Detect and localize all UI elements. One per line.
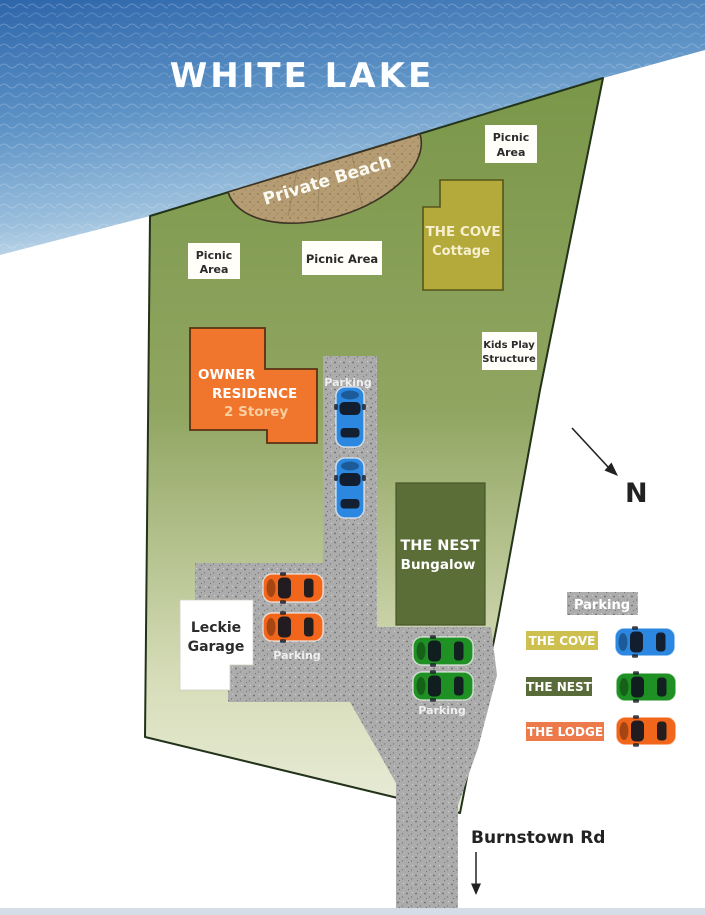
legend-parking-chip: Parking bbox=[567, 592, 638, 615]
legend-nest-label: THE NEST bbox=[526, 680, 592, 694]
legend-parking-label: Parking bbox=[574, 598, 630, 613]
nest-label-name: THE NEST bbox=[400, 538, 479, 554]
picnic-tr-line2: Area bbox=[497, 146, 526, 159]
picnic-area-left: Picnic Area bbox=[188, 243, 240, 279]
green-car-1 bbox=[413, 635, 473, 667]
bottom-border-strip bbox=[0, 908, 705, 915]
burnstown-rd-text: Burnstown Rd bbox=[471, 828, 605, 848]
legend-cove-label: THE COVE bbox=[529, 634, 596, 648]
legend-nest-car bbox=[616, 671, 676, 703]
picnic-area-top-right: Picnic Area bbox=[485, 125, 537, 163]
kids-play-line1: Kids Play bbox=[483, 340, 535, 351]
garage-label-line2: Garage bbox=[188, 639, 245, 655]
cove-label-type: Cottage bbox=[432, 244, 490, 259]
picnic-left-line1: Picnic bbox=[196, 249, 232, 262]
blue-car-2 bbox=[334, 458, 366, 518]
picnic-area-middle: Picnic Area bbox=[302, 241, 382, 275]
nest-label-type: Bungalow bbox=[401, 557, 476, 573]
north-label: N bbox=[625, 478, 648, 509]
picnic-middle-label: Picnic Area bbox=[306, 252, 378, 266]
kids-play-structure: Kids Play Structure bbox=[482, 332, 537, 370]
garage-label-line1: Leckie bbox=[191, 620, 241, 636]
owner-label-line2: RESIDENCE bbox=[212, 386, 297, 402]
green-car-2 bbox=[413, 670, 473, 702]
site-map-canvas: WHITE LAKE Private Beach Leckie Garage O… bbox=[0, 0, 705, 915]
orange-car-1 bbox=[263, 572, 323, 604]
blue-car-1 bbox=[334, 387, 366, 447]
orange-car-2 bbox=[263, 611, 323, 643]
lake-title: WHITE LAKE bbox=[170, 56, 434, 96]
lodge-parking-label: Parking bbox=[273, 649, 320, 662]
legend-cove-car bbox=[615, 626, 675, 658]
the-nest-building: THE NEST Bungalow bbox=[396, 483, 485, 625]
legend-lodge-car bbox=[616, 715, 676, 747]
site-map: WHITE LAKE Private Beach Leckie Garage O… bbox=[0, 0, 705, 915]
picnic-left-line2: Area bbox=[200, 263, 229, 276]
kids-play-line2: Structure bbox=[482, 354, 536, 365]
owner-label-line3: 2 Storey bbox=[224, 404, 288, 420]
picnic-tr-line1: Picnic bbox=[493, 131, 529, 144]
nest-parking-label: Parking bbox=[418, 704, 465, 717]
legend-lodge-label: THE LODGE bbox=[527, 725, 603, 739]
cove-label-name: THE COVE bbox=[425, 224, 500, 240]
owner-label-line1: OWNER bbox=[198, 367, 256, 383]
